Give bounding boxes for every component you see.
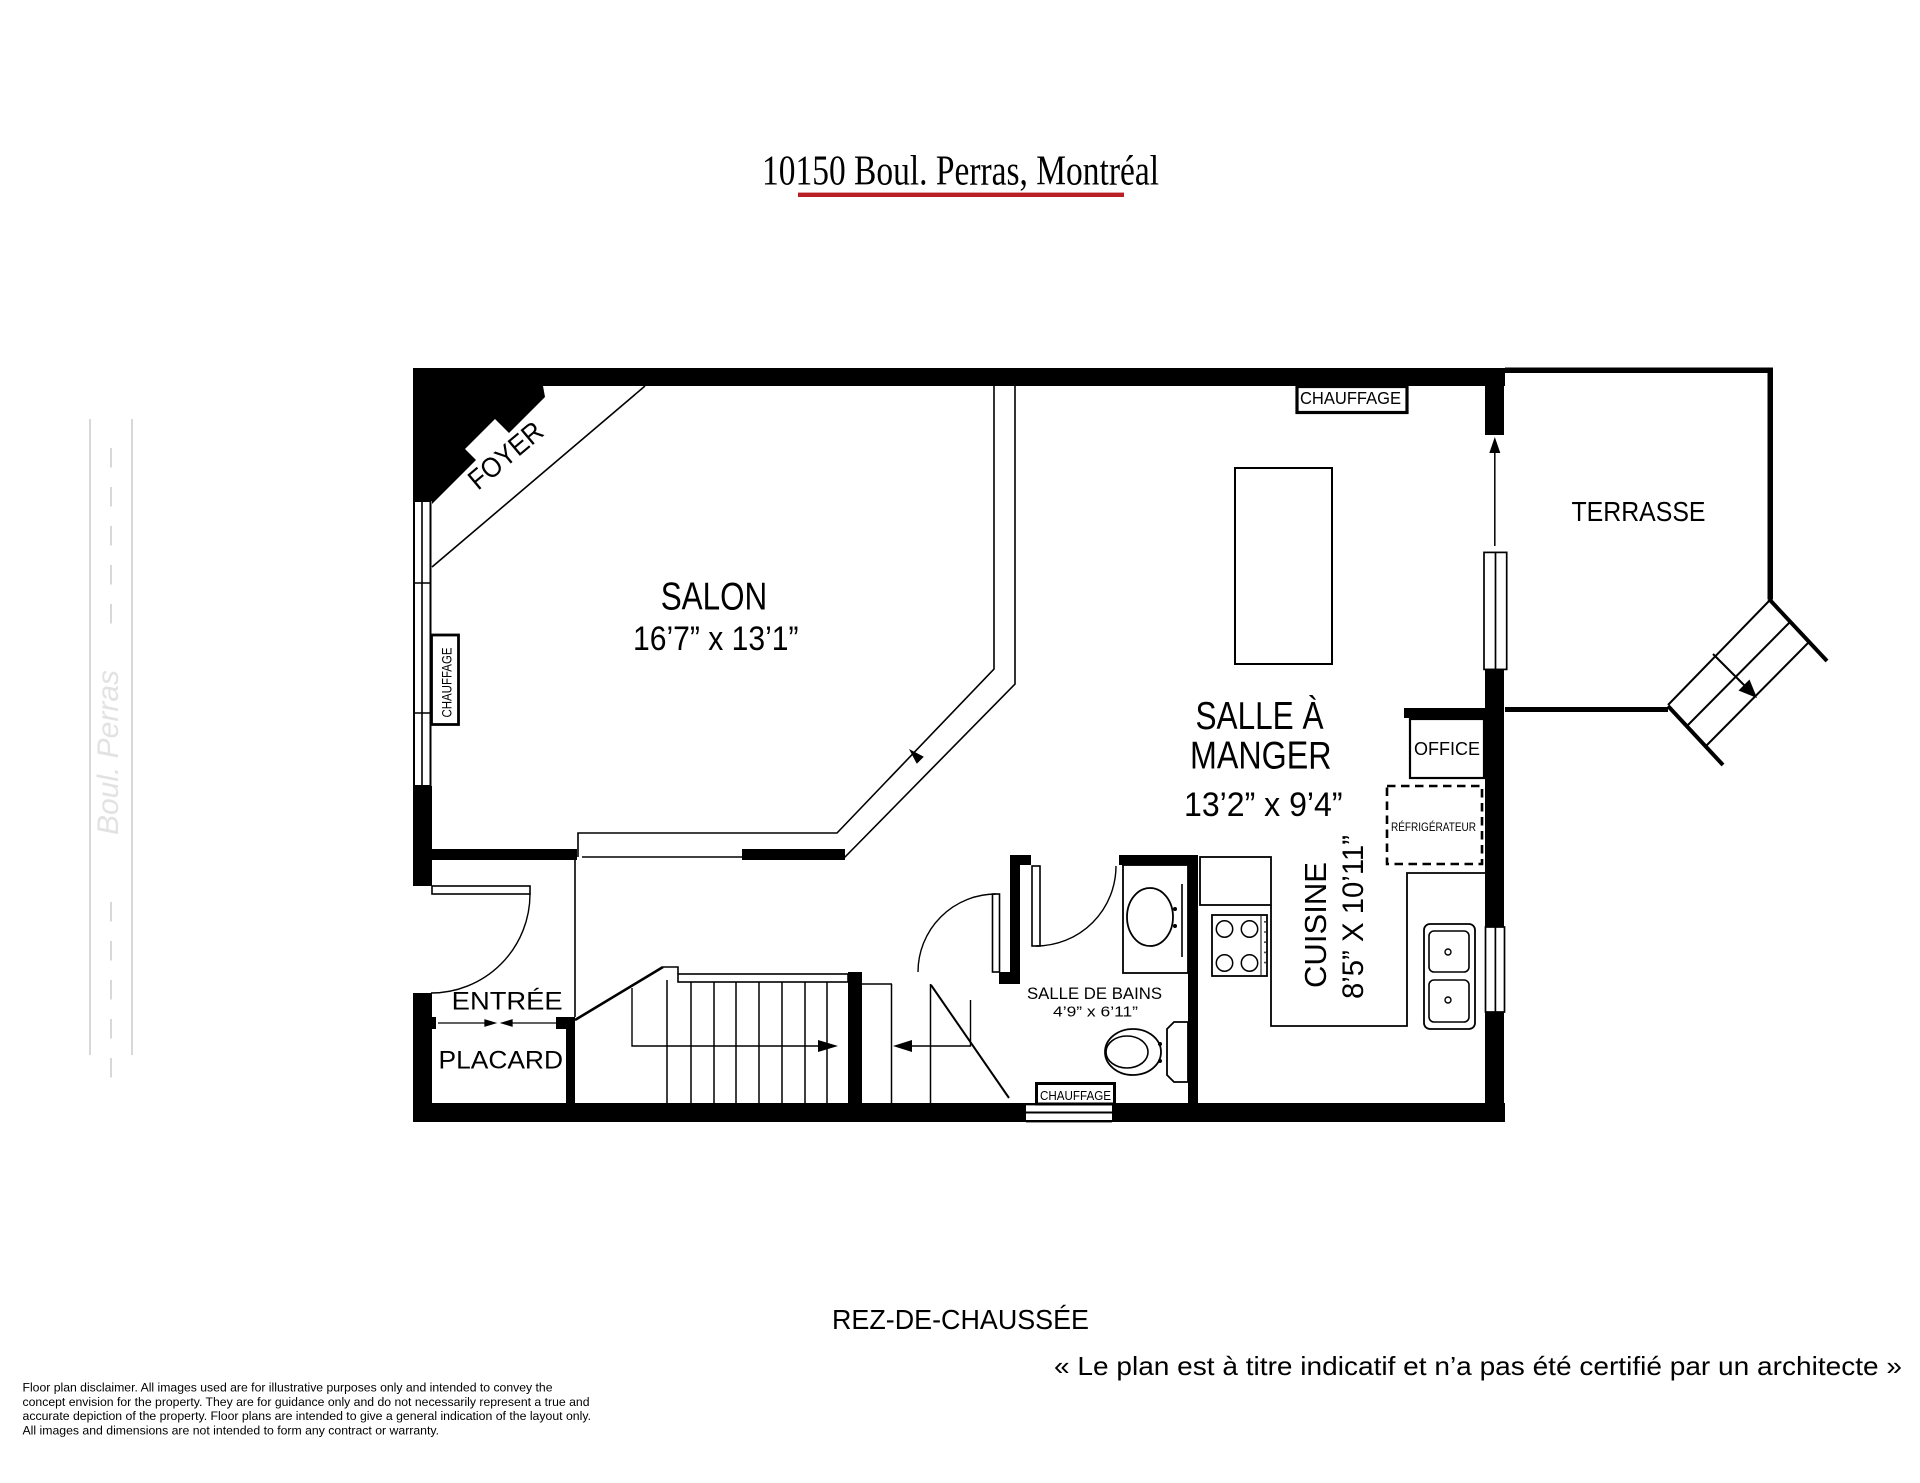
svg-text:OFFICE: OFFICE — [1414, 739, 1480, 759]
svg-text:MANGER: MANGER — [1190, 735, 1332, 778]
svg-text:10150 Boul. Perras, Montréal: 10150 Boul. Perras, Montréal — [762, 149, 1159, 195]
svg-text:concept envision for the prope: concept envision for the property. They … — [23, 1395, 590, 1409]
svg-text:SALON: SALON — [661, 575, 768, 618]
svg-text:CHAUFFAGE: CHAUFFAGE — [439, 648, 455, 718]
svg-text:RÉFRIGÉRATEUR: RÉFRIGÉRATEUR — [1391, 821, 1476, 834]
svg-text:ENTRÉE: ENTRÉE — [452, 987, 563, 1016]
svg-text:CHAUFFAGE: CHAUFFAGE — [1040, 1088, 1111, 1103]
svg-text:8’5” X 10’11”: 8’5” X 10’11” — [1337, 835, 1370, 999]
svg-text:13’2” x 9’4”: 13’2” x 9’4” — [1184, 786, 1343, 824]
svg-text:Boul. Perras: Boul. Perras — [92, 670, 125, 835]
svg-text:REZ-DE-CHAUSSÉE: REZ-DE-CHAUSSÉE — [832, 1304, 1089, 1335]
svg-text:TERRASSE: TERRASSE — [1572, 496, 1706, 527]
svg-text:« Le plan est à titre indicati: « Le plan est à titre indicatif et n’a p… — [1054, 1351, 1902, 1381]
svg-text:SALLE DE BAINS: SALLE DE BAINS — [1027, 984, 1162, 1003]
svg-text:SALLE À: SALLE À — [1196, 695, 1324, 738]
svg-text:accurate depiction of the prop: accurate depiction of the property. Floo… — [23, 1409, 592, 1423]
svg-text:16’7” x 13’1”: 16’7” x 13’1” — [633, 620, 799, 658]
svg-text:CHAUFFAGE: CHAUFFAGE — [1300, 388, 1401, 408]
svg-text:All images and dimensions are: All images and dimensions are not intend… — [23, 1424, 439, 1438]
svg-text:CUISINE: CUISINE — [1298, 862, 1333, 988]
svg-text:4’9” x 6’11”: 4’9” x 6’11” — [1053, 1005, 1138, 1021]
svg-text:Floor plan disclaimer. All ima: Floor plan disclaimer. All images used a… — [23, 1381, 553, 1395]
svg-text:PLACARD: PLACARD — [439, 1046, 564, 1074]
